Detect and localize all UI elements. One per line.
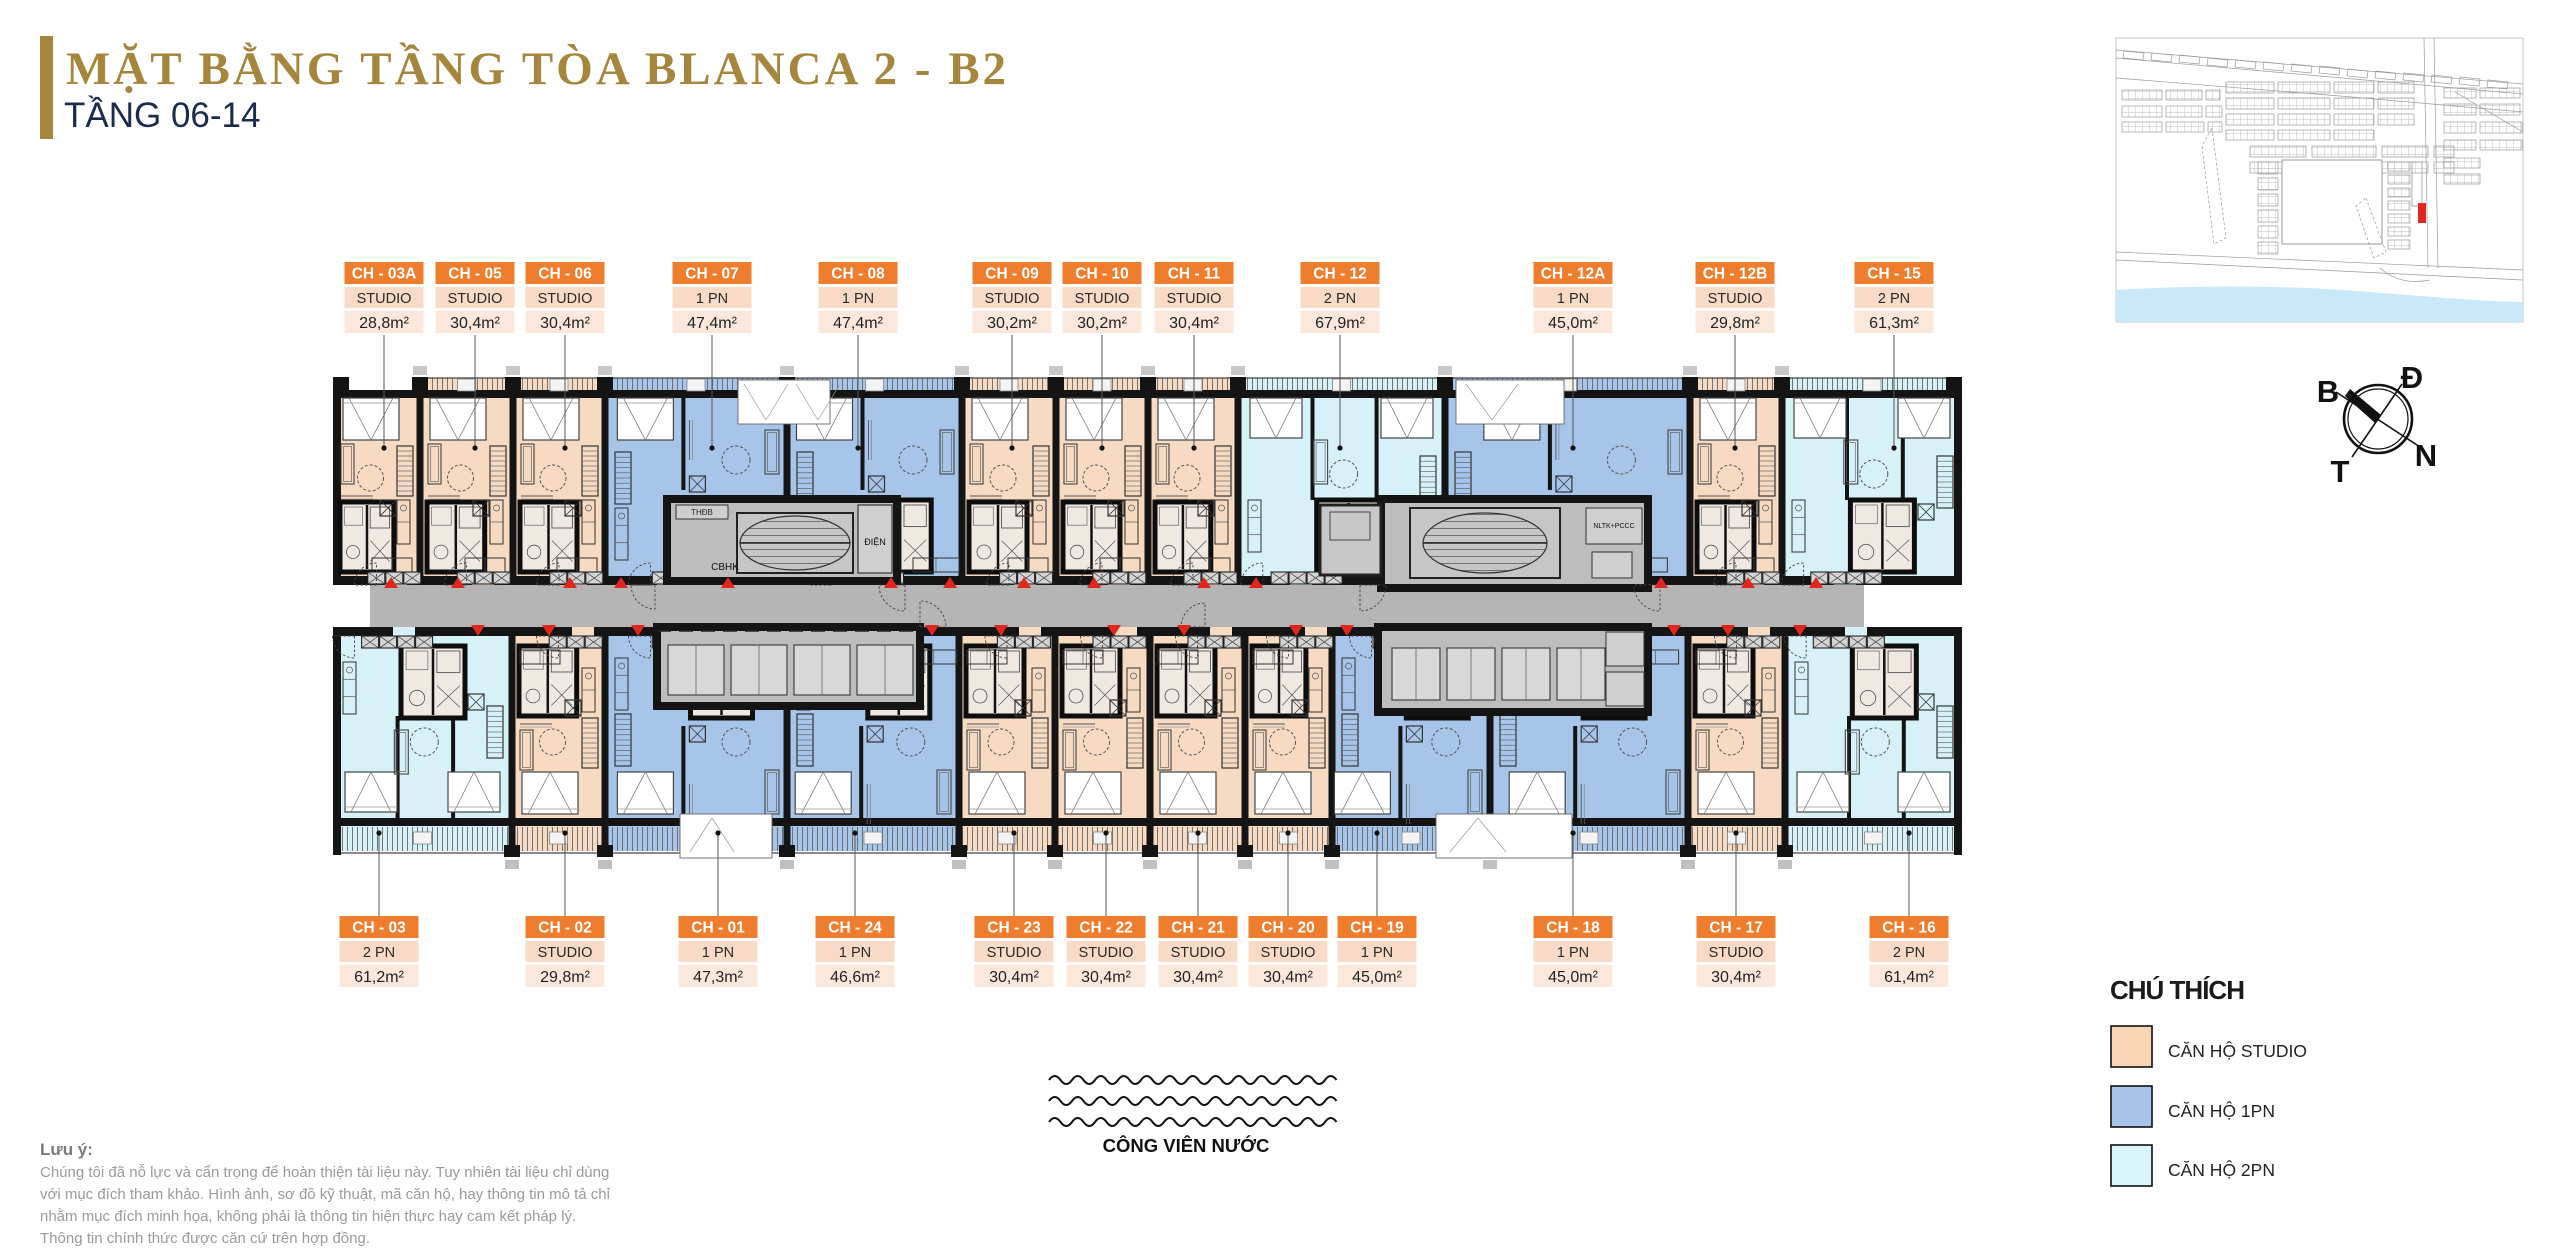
svg-text:CHÚ THÍCH: CHÚ THÍCH [2110,975,2244,1005]
svg-text:CH - 09: CH - 09 [985,266,1039,283]
svg-text:67,9m²: 67,9m² [1315,315,1365,332]
svg-text:CH - 12B: CH - 12B [1703,266,1768,283]
svg-text:CH - 17: CH - 17 [1709,920,1762,937]
svg-text:CH - 05: CH - 05 [448,266,502,283]
svg-text:THĐB: THĐB [691,508,713,517]
svg-text:CH - 08: CH - 08 [831,266,885,283]
svg-text:30,2m²: 30,2m² [987,315,1037,332]
svg-text:CH - 15: CH - 15 [1867,266,1921,283]
svg-text:CH - 19: CH - 19 [1350,920,1404,937]
svg-text:2 PN: 2 PN [1893,945,1925,961]
svg-text:45,0m²: 45,0m² [1352,969,1402,986]
svg-text:CH - 06: CH - 06 [538,266,592,283]
svg-text:28,8m²: 28,8m² [359,315,409,332]
svg-text:STUDIO: STUDIO [1075,291,1130,307]
svg-text:46,6m²: 46,6m² [830,969,880,986]
svg-text:STUDIO: STUDIO [1261,945,1316,961]
svg-text:30,2m²: 30,2m² [1077,315,1127,332]
svg-text:STUDIO: STUDIO [985,291,1040,307]
svg-text:47,4m²: 47,4m² [833,315,883,332]
svg-text:ĐIỆN: ĐIỆN [864,537,886,547]
svg-text:Đ: Đ [2401,360,2423,395]
svg-text:1 PN: 1 PN [842,291,874,307]
svg-text:30,4m²: 30,4m² [540,315,590,332]
svg-text:29,8m²: 29,8m² [1710,315,1760,332]
svg-text:1 PN: 1 PN [702,945,734,961]
svg-text:30,4m²: 30,4m² [1263,969,1313,986]
svg-text:30,4m²: 30,4m² [1169,315,1219,332]
svg-text:30,4m²: 30,4m² [1173,969,1223,986]
svg-text:CH - 23: CH - 23 [987,920,1041,937]
svg-text:45,0m²: 45,0m² [1548,969,1598,986]
svg-text:30,4m²: 30,4m² [450,315,500,332]
svg-text:CH - 03A: CH - 03A [352,266,417,283]
svg-text:CH - 01: CH - 01 [691,920,745,937]
svg-text:nhằm mục đích minh họa, không: nhằm mục đích minh họa, không phải là th… [40,1208,576,1225]
svg-text:2 PN: 2 PN [363,945,395,961]
svg-text:B: B [2317,374,2339,409]
svg-text:STUDIO: STUDIO [1167,291,1222,307]
svg-text:CBHK: CBHK [711,562,739,573]
svg-text:T: T [2331,454,2350,489]
svg-text:1 PN: 1 PN [1557,291,1589,307]
svg-text:CH - 20: CH - 20 [1261,920,1314,937]
svg-text:CH - 02: CH - 02 [538,920,591,937]
svg-text:STUDIO: STUDIO [1709,945,1764,961]
svg-text:47,3m²: 47,3m² [693,969,743,986]
svg-text:STUDIO: STUDIO [357,291,412,307]
svg-text:CH - 07: CH - 07 [685,266,738,283]
svg-text:N: N [2415,438,2437,473]
svg-text:30,4m²: 30,4m² [1711,969,1761,986]
svg-text:STUDIO: STUDIO [538,945,593,961]
svg-text:CH - 21: CH - 21 [1171,920,1225,937]
svg-text:30,4m²: 30,4m² [1081,969,1131,986]
svg-text:STUDIO: STUDIO [1708,291,1763,307]
svg-text:CH - 12A: CH - 12A [1541,266,1606,283]
svg-text:STUDIO: STUDIO [538,291,593,307]
svg-text:CH - 12: CH - 12 [1313,266,1366,283]
svg-text:2 PN: 2 PN [1324,291,1356,307]
svg-text:với mục đích tham khảo. Hình ả: với mục đích tham khảo. Hình ảnh, sơ đồ … [40,1186,611,1203]
svg-text:Lưu ý:: Lưu ý: [40,1140,93,1159]
svg-text:CĂN HỘ 2PN: CĂN HỘ 2PN [2168,1159,2275,1180]
svg-text:30,4m²: 30,4m² [989,969,1039,986]
svg-text:STUDIO: STUDIO [1079,945,1134,961]
svg-text:TẦNG 06-14: TẦNG 06-14 [64,95,260,135]
svg-text:47,4m²: 47,4m² [687,315,737,332]
svg-text:NLTK+PCCC: NLTK+PCCC [1593,523,1634,530]
svg-text:1 PN: 1 PN [696,291,728,307]
svg-text:STUDIO: STUDIO [987,945,1042,961]
svg-text:Chúng tôi đã nỗ lực và cẩn trọ: Chúng tôi đã nỗ lực và cẩn trọng để hoàn… [40,1164,609,1181]
svg-text:CH - 22: CH - 22 [1079,920,1132,937]
svg-text:1 PN: 1 PN [1557,945,1589,961]
svg-text:61,2m²: 61,2m² [354,969,404,986]
svg-text:CĂN HỘ 1PN: CĂN HỘ 1PN [2168,1100,2275,1121]
svg-text:CÔNG VIÊN NƯỚC: CÔNG VIÊN NƯỚC [1103,1135,1270,1156]
svg-text:CH - 18: CH - 18 [1546,920,1600,937]
svg-text:STUDIO: STUDIO [448,291,503,307]
svg-text:2 PN: 2 PN [1878,291,1910,307]
svg-text:45,0m²: 45,0m² [1548,315,1598,332]
svg-text:CH - 24: CH - 24 [828,920,882,937]
svg-text:MẶT BẰNG TẦNG TÒA BLANCA 2 - B: MẶT BẰNG TẦNG TÒA BLANCA 2 - B2 [66,42,1009,95]
svg-text:1 PN: 1 PN [839,945,871,961]
svg-text:61,4m²: 61,4m² [1884,969,1934,986]
svg-text:1 PN: 1 PN [1361,945,1393,961]
svg-text:CH - 11: CH - 11 [1168,266,1221,283]
svg-text:CH - 16: CH - 16 [1882,920,1936,937]
svg-text:29,8m²: 29,8m² [540,969,590,986]
svg-text:CH - 10: CH - 10 [1075,266,1128,283]
svg-text:STUDIO: STUDIO [1171,945,1226,961]
svg-text:CĂN HỘ STUDIO: CĂN HỘ STUDIO [2168,1040,2307,1061]
svg-text:Thông tin chính thức được căn: Thông tin chính thức được căn cứ trên hợ… [40,1230,370,1247]
svg-text:61,3m²: 61,3m² [1869,315,1919,332]
svg-text:CH - 03: CH - 03 [352,920,406,937]
